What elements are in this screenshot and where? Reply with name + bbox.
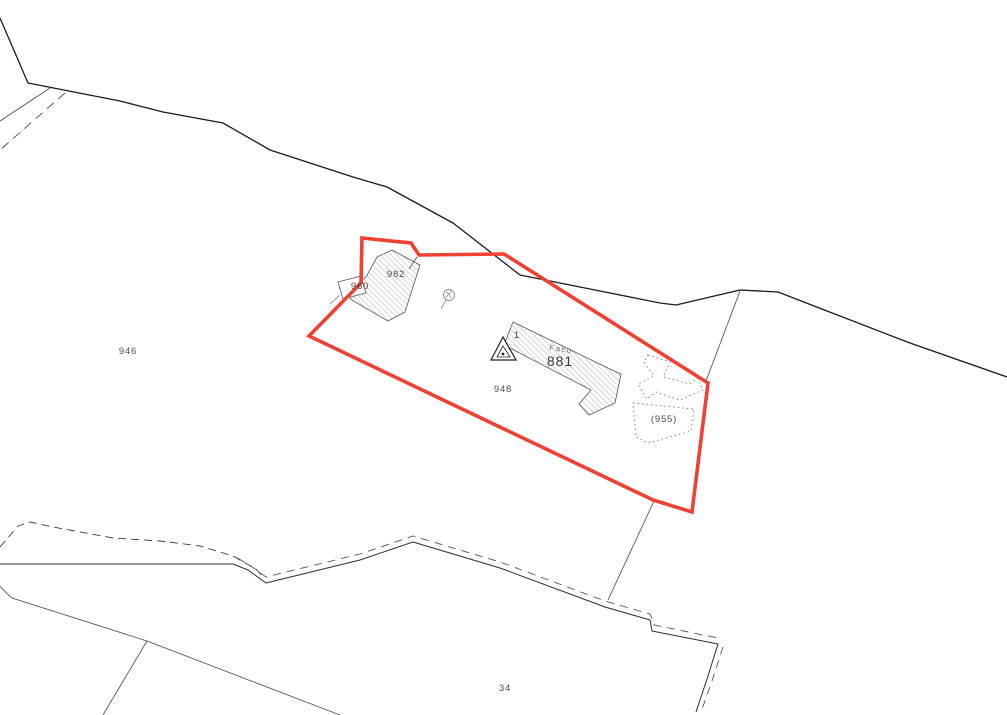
parcel-line-to-red-corner [706,291,740,381]
well-circle-icon [441,290,455,310]
parcel-label-948: 948 [494,384,512,395]
main-boundary-line [0,18,1007,377]
dotted-parcel-upper [638,355,703,400]
dashed-boundary-left [0,522,263,577]
survey-point-label-1: 1 [514,330,520,340]
bottomleft-branch-line [103,641,147,715]
ticked-boundary-dashes [237,536,718,638]
topleft-road-dashed-edge [0,93,65,150]
cadastral-map-canvas[interactable]: 946 982 960 948 Faco 881 1 (955) 34 [0,0,1007,715]
ticked-boundary-solid [0,542,718,712]
map-viewport[interactable]: 946 982 960 948 Faco 881 1 (955) 34 [0,0,1007,715]
parcel-label-34: 34 [499,683,511,694]
parcel-line-below-red [608,501,654,600]
topleft-road-edge [0,88,50,121]
bottomleft-diagonal-line [0,586,340,715]
parcel-label-955: (955) [651,414,677,425]
ticked-boundary-end-dashes [701,647,723,712]
building-960-tail [330,295,340,304]
building-label-960: 960 [351,281,369,292]
building-label-881: 881 [547,353,573,369]
parcel-label-946: 946 [119,346,137,357]
building-label-982: 982 [387,269,405,280]
